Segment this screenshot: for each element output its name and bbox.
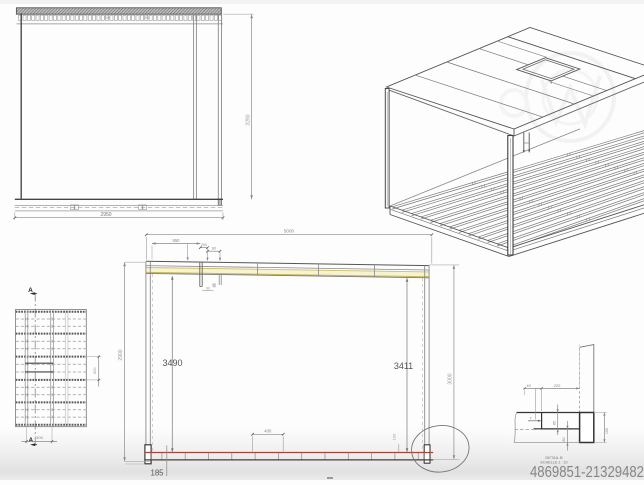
svg-text:4869851-21329482: 4869851-21329482	[530, 464, 644, 480]
svg-text:2950: 2950	[100, 212, 111, 218]
svg-text:3000: 3000	[447, 373, 453, 384]
svg-text:A: A	[28, 287, 33, 294]
svg-text:7: 7	[530, 417, 532, 421]
svg-text:3490: 3490	[162, 358, 182, 368]
svg-text:350: 350	[104, 16, 110, 20]
svg-text:2900: 2900	[118, 349, 124, 360]
svg-text:80: 80	[212, 247, 216, 251]
svg-text:400: 400	[264, 429, 272, 434]
svg-text:90: 90	[206, 286, 210, 290]
svg-text:100: 100	[391, 433, 396, 440]
svg-text:200: 200	[201, 243, 207, 247]
svg-text:5000: 5000	[284, 229, 295, 234]
svg-text:350: 350	[144, 16, 150, 20]
svg-text:185: 185	[150, 469, 164, 478]
svg-text:80: 80	[562, 437, 566, 441]
svg-text:A: A	[28, 437, 33, 444]
svg-text:3290: 3290	[245, 114, 251, 125]
svg-text:DETAIL B: DETAIL B	[545, 455, 563, 460]
svg-text:300: 300	[36, 435, 43, 440]
svg-text:100: 100	[605, 428, 609, 434]
svg-text:600: 600	[93, 368, 97, 374]
svg-text:85: 85	[552, 421, 556, 425]
svg-text:3411: 3411	[394, 361, 413, 371]
svg-text:40: 40	[526, 383, 531, 388]
svg-text:950: 950	[173, 238, 181, 243]
svg-text:220: 220	[554, 383, 561, 388]
